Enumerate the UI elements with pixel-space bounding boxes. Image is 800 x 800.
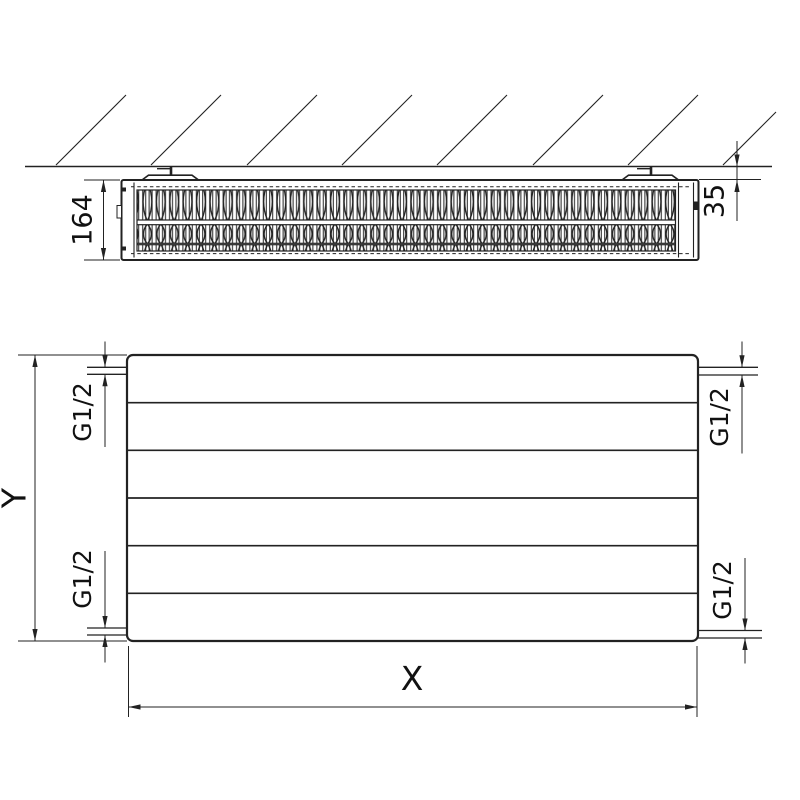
- arrow-down-icon: [739, 355, 744, 367]
- valve-notch-left: [117, 206, 122, 219]
- connection-stub-top-right: [698, 367, 758, 375]
- top-view-radiator-body: [117, 180, 699, 260]
- top-view: 164 35: [25, 95, 776, 260]
- height-dimension-label: Y: [0, 487, 34, 509]
- arrow-down-icon: [734, 155, 739, 167]
- dim-g12-bottom-left: [102, 551, 107, 663]
- arrow-up-icon: [32, 355, 37, 367]
- connection-stub-top-left: [87, 367, 127, 374]
- radiator-technical-drawing: 164 35: [0, 0, 800, 800]
- connection-stub-bottom-right: [698, 631, 762, 639]
- arrow-up-icon: [101, 180, 106, 192]
- arrow-left-icon: [129, 704, 141, 709]
- connection-stub-bottom-left: [87, 628, 127, 635]
- mounting-bracket-right: [622, 167, 679, 180]
- arrow-right-icon: [685, 704, 697, 709]
- endcap-tick-top-left: [123, 188, 127, 192]
- arrow-down-icon: [101, 248, 106, 260]
- dim-g12-top-right: [739, 342, 744, 454]
- mounting-bracket-left: [142, 167, 199, 180]
- width-dimension-label: X: [401, 659, 424, 698]
- arrow-down-icon: [102, 355, 107, 367]
- arrow-down-icon: [742, 619, 747, 631]
- g12-label-bottom-right: G1/2: [708, 560, 737, 620]
- g12-label-top-right: G1/2: [705, 387, 734, 447]
- front-view: Y X G1/2 G1/2: [0, 342, 762, 718]
- arrow-up-icon: [739, 375, 744, 387]
- convector-fins: [137, 190, 676, 251]
- drawing-svg: 164 35: [0, 0, 800, 800]
- wall-clearance-label: 35: [700, 184, 731, 218]
- endcap-tick-right: [694, 202, 698, 211]
- arrow-down-icon: [102, 616, 107, 628]
- arrow-up-icon: [742, 638, 747, 650]
- g12-label-top-left: G1/2: [68, 382, 97, 442]
- dim-g12-top-left: [102, 342, 107, 448]
- endcap-tick-bottom-left: [123, 247, 127, 251]
- arrow-down-icon: [32, 629, 37, 641]
- dim-g12-bottom-right: [742, 558, 747, 664]
- arrow-up-icon: [734, 180, 739, 192]
- arrow-up-icon: [102, 374, 107, 386]
- wall-hatching: [56, 95, 776, 165]
- g12-label-bottom-left: G1/2: [68, 549, 97, 609]
- depth-dimension-label: 164: [68, 194, 99, 246]
